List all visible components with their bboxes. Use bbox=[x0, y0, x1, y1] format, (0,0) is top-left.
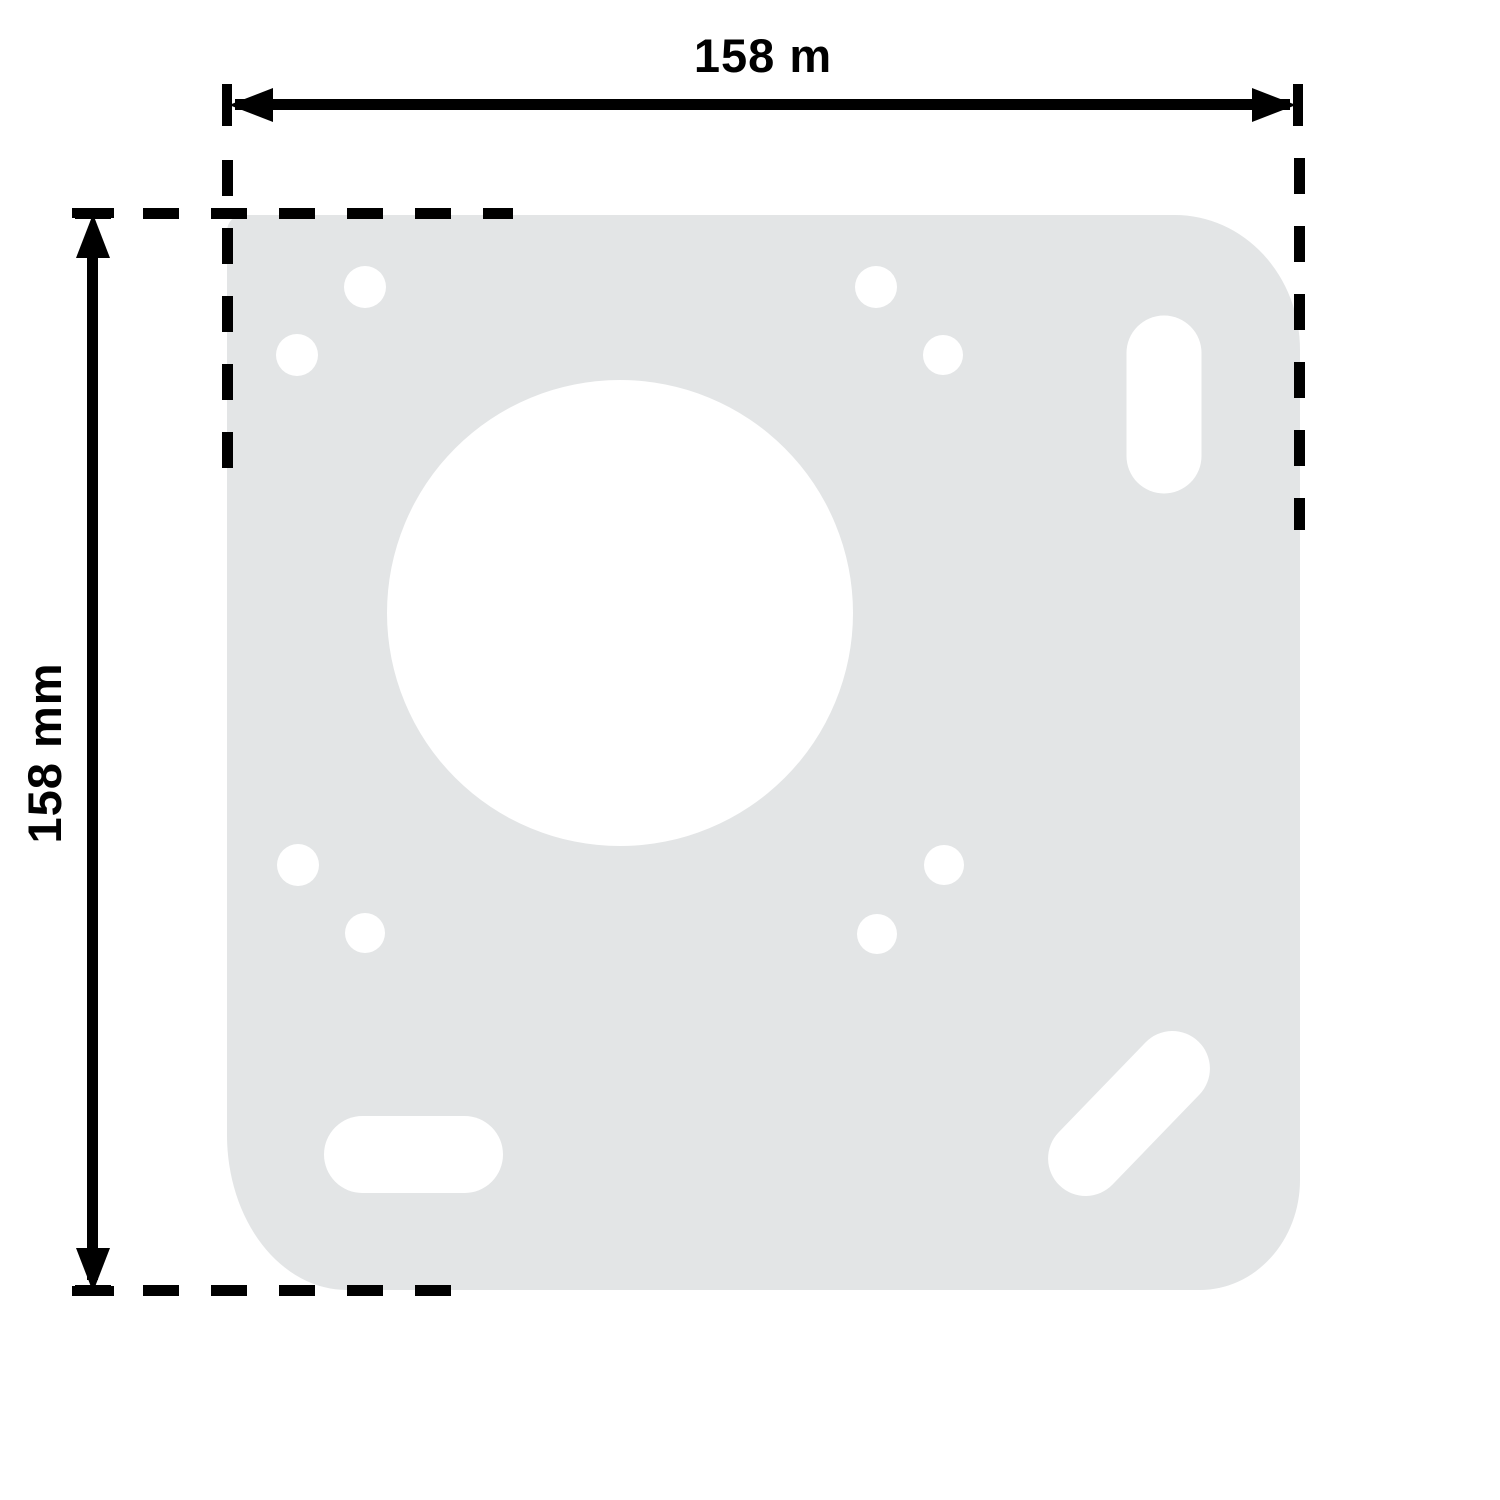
extension-tick-top-left bbox=[222, 84, 232, 126]
arrowhead-up-icon bbox=[76, 214, 110, 258]
screw-hole-top-left-b bbox=[276, 334, 318, 376]
vertical-dimension-line bbox=[87, 230, 98, 1280]
dashed-extension-line-left bbox=[222, 160, 233, 473]
slot-hole-bottom-left bbox=[324, 1116, 503, 1193]
screw-hole-top-left-a bbox=[344, 266, 386, 308]
horizontal-dimension-label: 158 m bbox=[230, 28, 1296, 83]
vertical-dimension-label: 158 mm bbox=[18, 603, 72, 903]
horizontal-dimension-line bbox=[235, 99, 1290, 110]
dashed-extension-line-bottom bbox=[75, 1285, 458, 1296]
screw-hole-mid-left-b bbox=[345, 913, 385, 953]
drawing-canvas: 158 m 158 mm bbox=[0, 0, 1500, 1500]
screw-hole-mid-right-a bbox=[924, 845, 964, 885]
screw-hole-top-right-a bbox=[855, 266, 897, 308]
screw-hole-top-right-b bbox=[923, 335, 963, 375]
dashed-extension-line-right bbox=[1294, 158, 1305, 530]
dashed-extension-line-top bbox=[75, 208, 513, 219]
screw-hole-mid-left-a bbox=[277, 844, 319, 886]
screw-hole-mid-right-b bbox=[857, 914, 897, 954]
mounting-plate bbox=[227, 215, 1300, 1290]
slot-hole-bottom-right bbox=[1033, 1015, 1226, 1211]
center-hole bbox=[387, 380, 853, 846]
slot-hole-top-right bbox=[1127, 315, 1202, 493]
arrowhead-right-icon bbox=[1252, 88, 1296, 122]
arrowhead-left-icon bbox=[229, 88, 273, 122]
extension-tick-top-right bbox=[1293, 84, 1303, 126]
